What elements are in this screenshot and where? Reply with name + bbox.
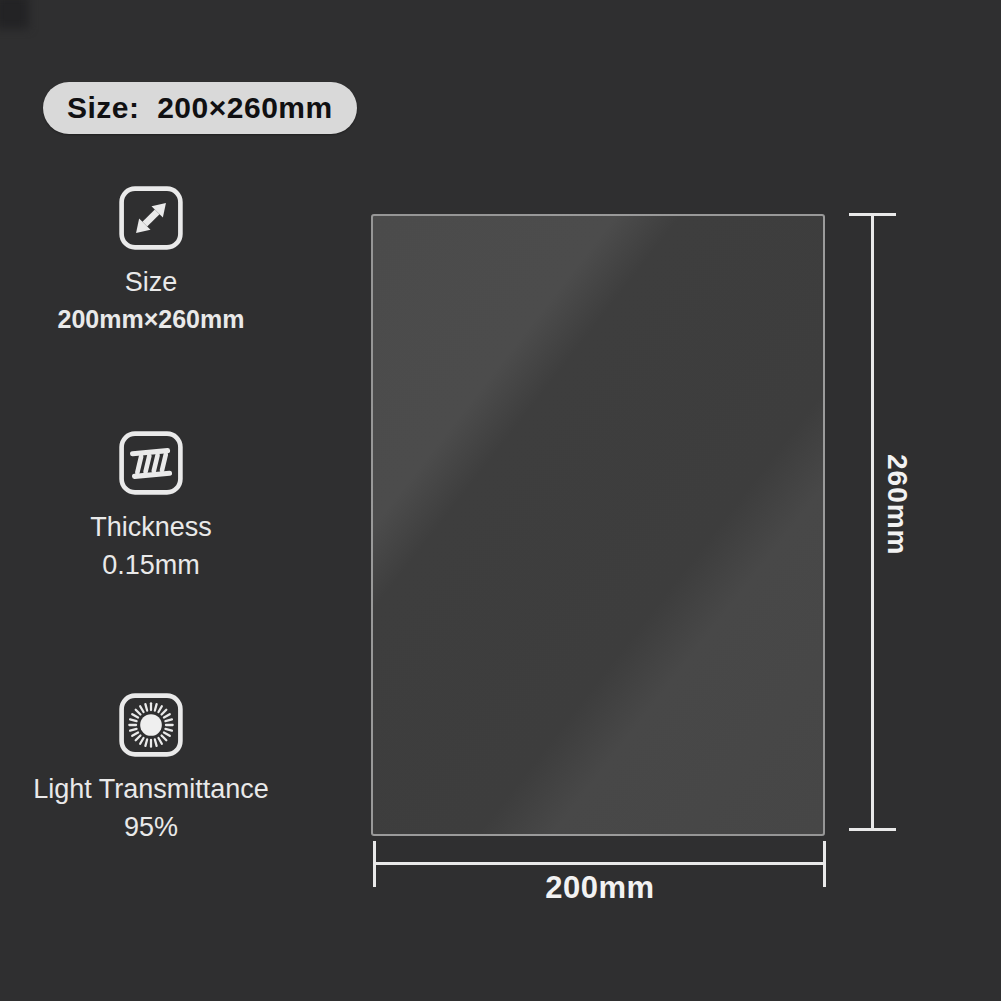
sun-icon (118, 692, 184, 758)
feature-light-label: Light Transmittance (33, 775, 269, 805)
feature-size-value: 200mm×260mm (58, 306, 245, 334)
feature-thickness-label: Thickness (90, 513, 212, 543)
size-badge: Size: 200×260mm (43, 82, 357, 134)
product-sheet (371, 214, 825, 836)
feature-thickness: Thickness 0.15mm (0, 430, 302, 580)
width-dimension-cap-right (823, 841, 826, 887)
feature-light-transmittance: Light Transmittance 95% (0, 692, 302, 842)
feature-size-label: Size (125, 268, 178, 298)
width-dimension-line (374, 862, 826, 865)
height-dimension-line (871, 214, 874, 830)
corner-shadow (0, 0, 29, 29)
height-dimension-cap-bottom (849, 828, 896, 831)
width-dimension-cap-left (373, 841, 376, 887)
thickness-icon (118, 430, 184, 496)
feature-thickness-value: 0.15mm (102, 551, 200, 581)
feature-size: Size 200mm×260mm (0, 185, 302, 333)
width-dimension-label: 200mm (450, 870, 750, 906)
height-dimension-label: 260mm (881, 454, 913, 556)
size-badge-label: Size: 200×260mm (67, 91, 333, 125)
height-dimension-cap-top (849, 213, 896, 216)
feature-light-value: 95% (124, 813, 178, 843)
resize-arrows-icon (118, 185, 184, 251)
